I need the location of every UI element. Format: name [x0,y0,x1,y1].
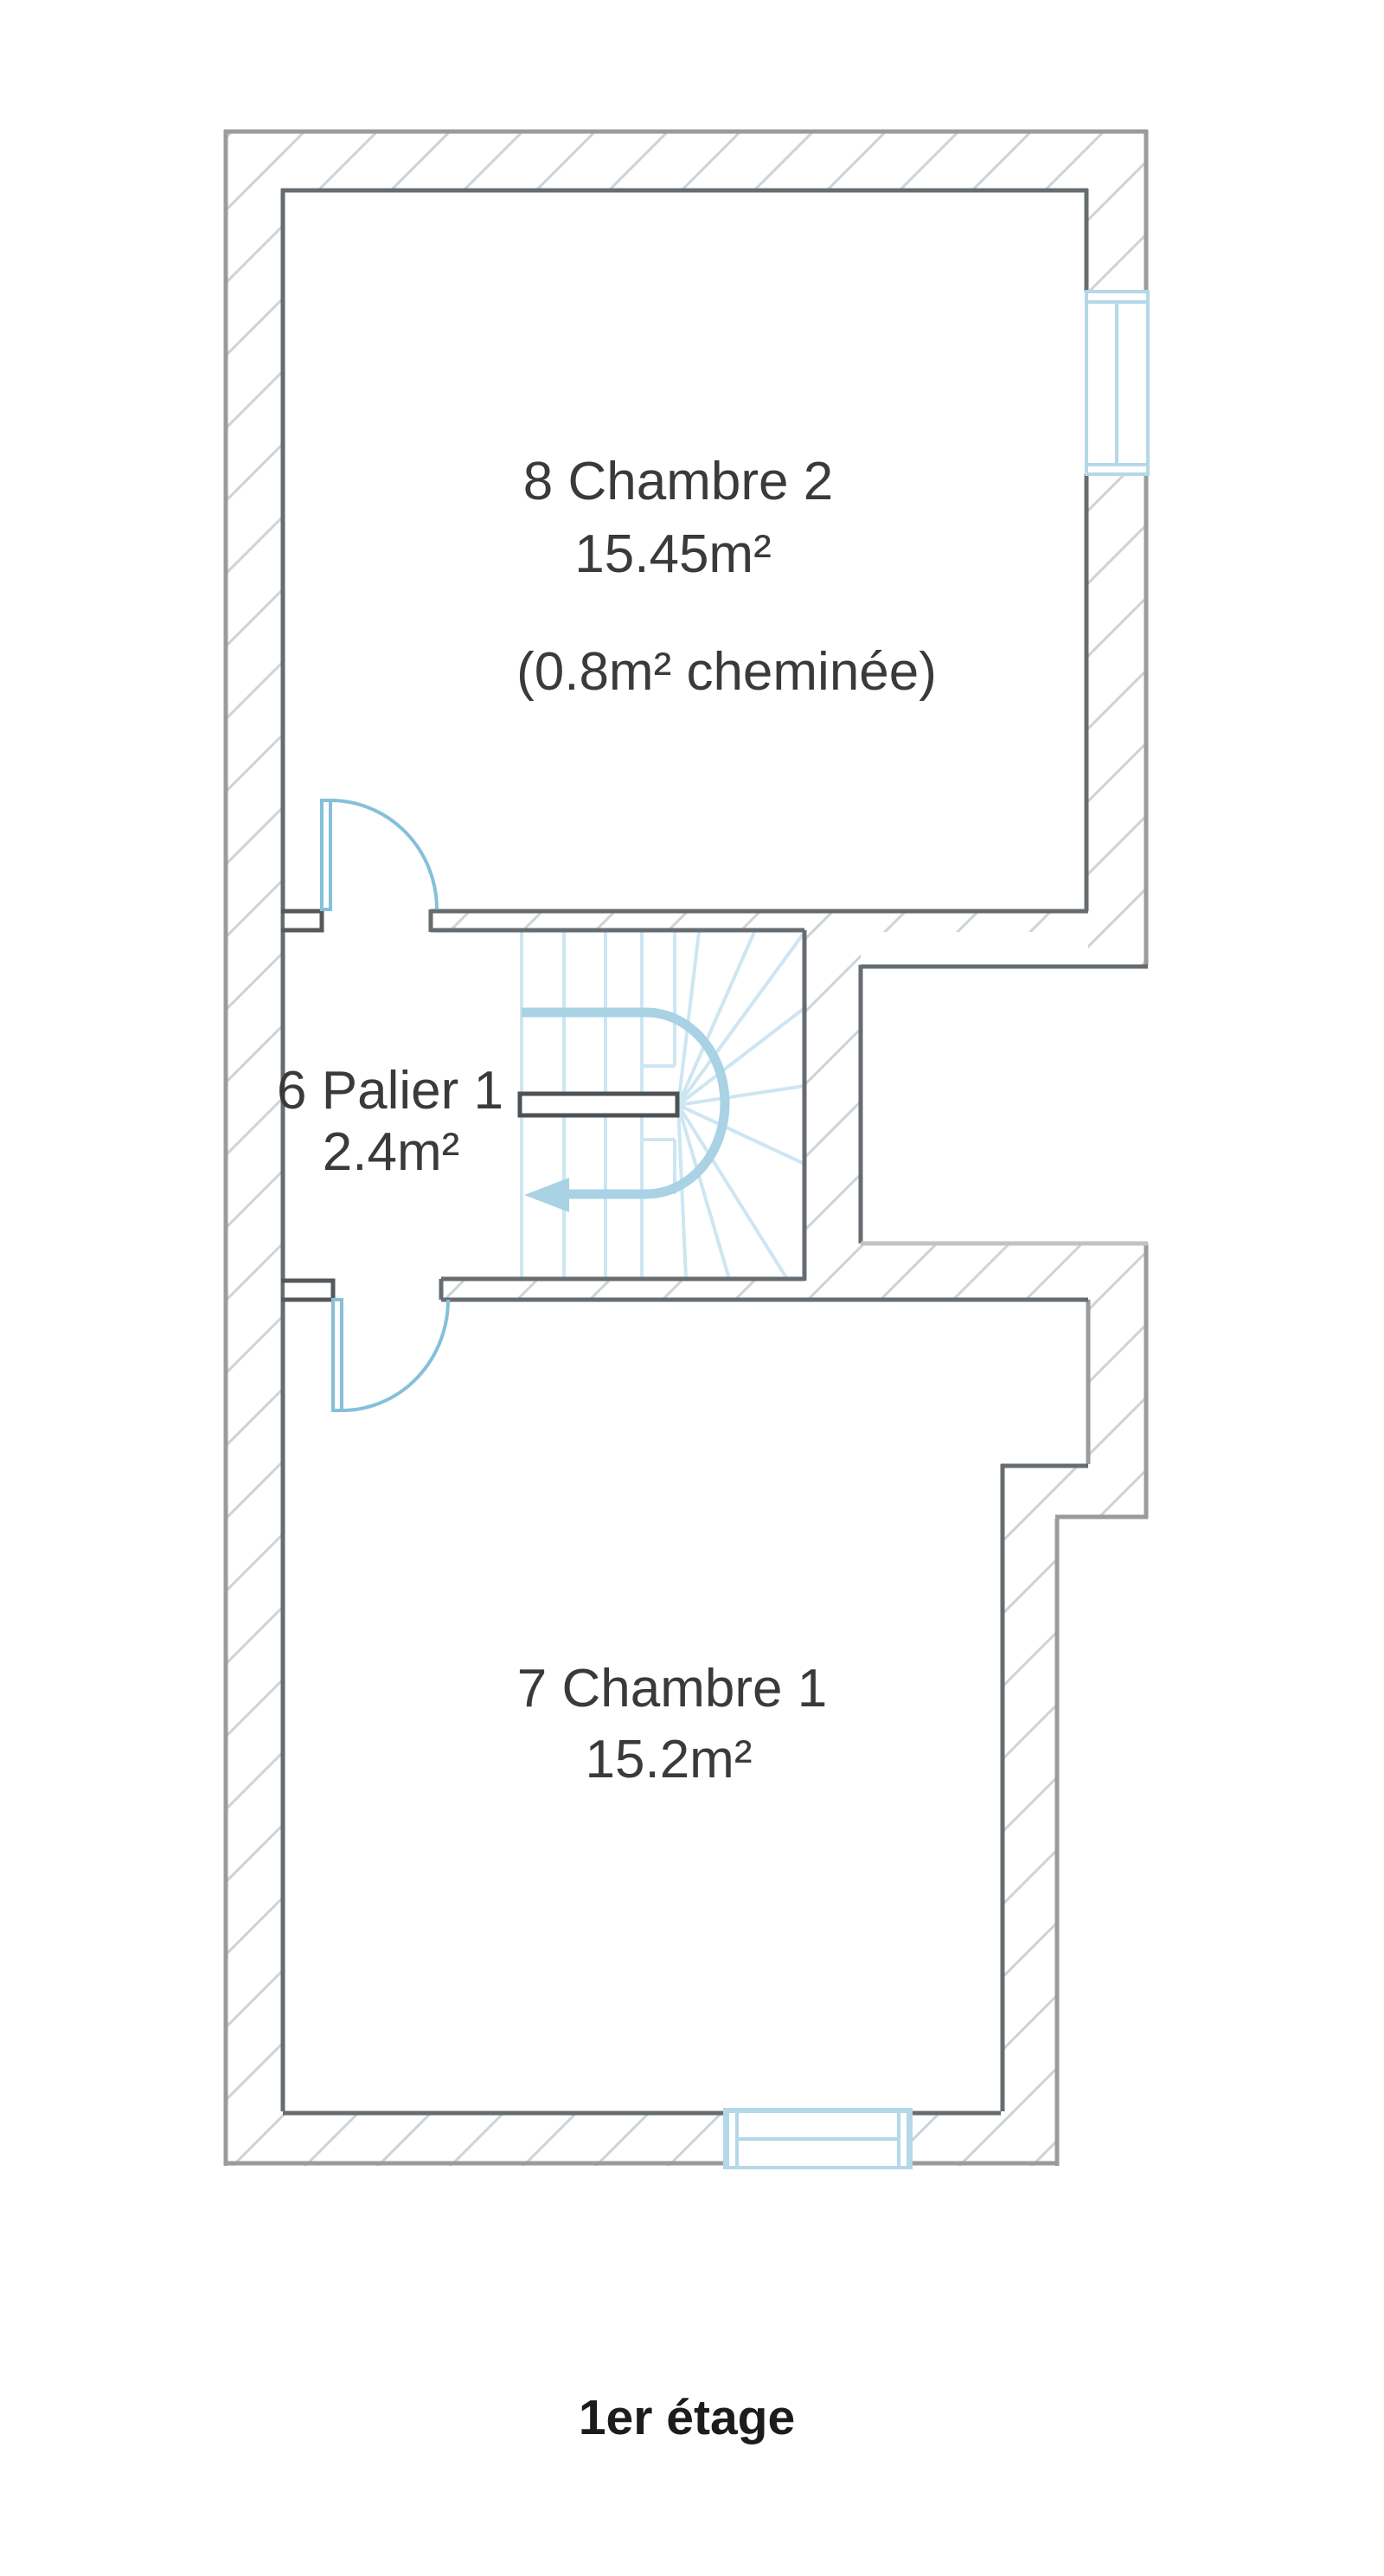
floor-caption: 1er étage [579,2393,795,2443]
room-label-chambre1-area: 15.2m² [586,1733,753,1787]
room-label-chambre1-name: 7 Chambre 1 [517,1662,827,1716]
stair-landing-bar [520,1094,677,1115]
room-label-chambre2-name: 8 Chambre 2 [523,455,833,509]
floor-plan-page: 8 Chambre 2 15.45m² (0.8m² cheminée) 6 P… [0,0,1384,2576]
window-bottom [725,2110,911,2168]
room-label-chambre2-area: 15.45m² [574,528,771,581]
room-label-chambre2-note: (0.8m² cheminée) [516,646,937,699]
door-chambre1 [333,1300,448,1410]
door-chambre2 [322,800,437,909]
window-right [1086,292,1148,474]
room-label-palier-area: 2.4m² [323,1126,459,1179]
door-swing-arc [342,1300,448,1410]
floor-plan-drawing [0,0,1384,2576]
room-label-palier-name: 6 Palier 1 [277,1064,503,1118]
stair-direction-arrow-icon [524,1178,569,1212]
staircase [520,932,804,1279]
door-leaf [333,1300,342,1410]
door-leaf [322,800,330,909]
door-swing-arc [330,800,437,909]
